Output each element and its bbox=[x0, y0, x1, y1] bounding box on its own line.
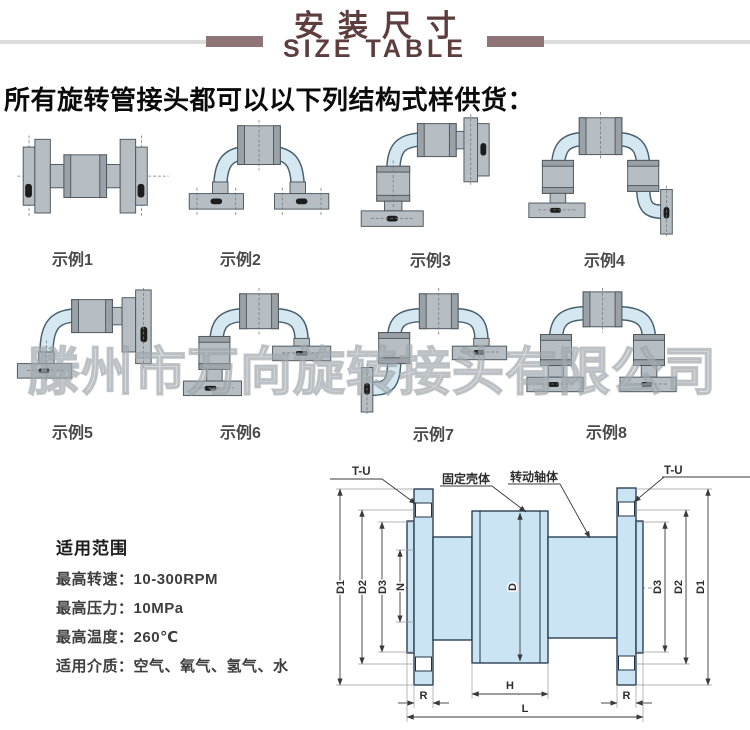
example-3-drawing bbox=[350, 112, 512, 238]
specs-panel: 适用范围 最高转速：10-300RPM 最高压力：10MPa 最高温度：260℃… bbox=[56, 534, 289, 684]
example-5-image bbox=[12, 288, 174, 414]
fixed-housing-label: 固定壳体 bbox=[442, 471, 491, 486]
specs-title: 适用范围 bbox=[56, 534, 289, 559]
dim-l: L bbox=[522, 703, 529, 715]
spec-label: 最高压力： bbox=[56, 600, 134, 617]
tu-right-label: T-U bbox=[664, 465, 683, 477]
spec-row-temperature: 最高温度：260℃ bbox=[56, 626, 289, 647]
example-7-drawing bbox=[350, 288, 512, 414]
tu-left-label: T-U bbox=[352, 466, 371, 478]
example-5-label: 示例5 bbox=[52, 419, 93, 443]
spec-value: 空气、氧气、氢气、水 bbox=[134, 658, 289, 675]
example-2-image bbox=[178, 118, 340, 244]
spec-value: 10-300RPM bbox=[134, 571, 219, 588]
spec-row-media: 适用介质：空气、氧气、氢气、水 bbox=[56, 655, 289, 676]
example-7-label: 示例7 bbox=[413, 421, 454, 445]
dim-d: D bbox=[507, 583, 519, 591]
dim-d2-left: D2 bbox=[357, 580, 369, 594]
spec-value: 260℃ bbox=[134, 629, 179, 646]
example-6-drawing bbox=[178, 288, 340, 414]
example-4-image bbox=[515, 110, 690, 236]
spec-value: 10MPa bbox=[134, 600, 184, 617]
dim-d1-left: D1 bbox=[335, 580, 347, 594]
dim-d3-right: D3 bbox=[652, 580, 664, 594]
example-1-image bbox=[12, 118, 174, 244]
example-7-image bbox=[350, 288, 512, 414]
dim-r-right: R bbox=[623, 690, 631, 702]
example-3-label: 示例3 bbox=[410, 247, 451, 271]
example-2-label: 示例2 bbox=[220, 246, 261, 270]
example-4-label: 示例4 bbox=[584, 247, 625, 271]
example-2-drawing bbox=[178, 118, 340, 244]
example-6-label: 示例6 bbox=[220, 419, 261, 443]
size-table-page: 安装尺寸 SIZE TABLE 所有旋转管接头都可以以下列结构式样供货： bbox=[0, 0, 750, 730]
example-6-image bbox=[178, 288, 340, 414]
dimension-drawing: D1 D2 D3 N D D3 D2 D1 R bbox=[330, 458, 750, 730]
dim-d1-right: D1 bbox=[695, 580, 707, 594]
example-4-drawing bbox=[515, 110, 690, 236]
dim-n: N bbox=[395, 583, 407, 591]
spec-row-speed: 最高转速：10-300RPM bbox=[56, 568, 289, 589]
spec-label: 适用介质： bbox=[56, 658, 134, 675]
spec-label: 最高转速： bbox=[56, 571, 134, 588]
deco-line-right bbox=[544, 40, 750, 44]
rotating-shaft-label: 转动轴体 bbox=[510, 469, 559, 484]
example-8-drawing bbox=[515, 288, 690, 414]
example-5-drawing bbox=[12, 288, 174, 414]
dim-h: H bbox=[506, 680, 514, 692]
deco-bar-right bbox=[487, 36, 544, 47]
example-8-image bbox=[515, 288, 690, 414]
spec-label: 最高温度： bbox=[56, 629, 134, 646]
dim-r-left: R bbox=[420, 690, 428, 702]
example-1-label: 示例1 bbox=[52, 246, 93, 270]
example-8-label: 示例8 bbox=[586, 419, 627, 443]
example-1-drawing bbox=[12, 118, 174, 244]
example-3-image bbox=[350, 112, 512, 238]
spec-row-pressure: 最高压力：10MPa bbox=[56, 597, 289, 618]
dim-d3-left: D3 bbox=[377, 580, 389, 594]
dim-d2-right: D2 bbox=[673, 580, 685, 594]
